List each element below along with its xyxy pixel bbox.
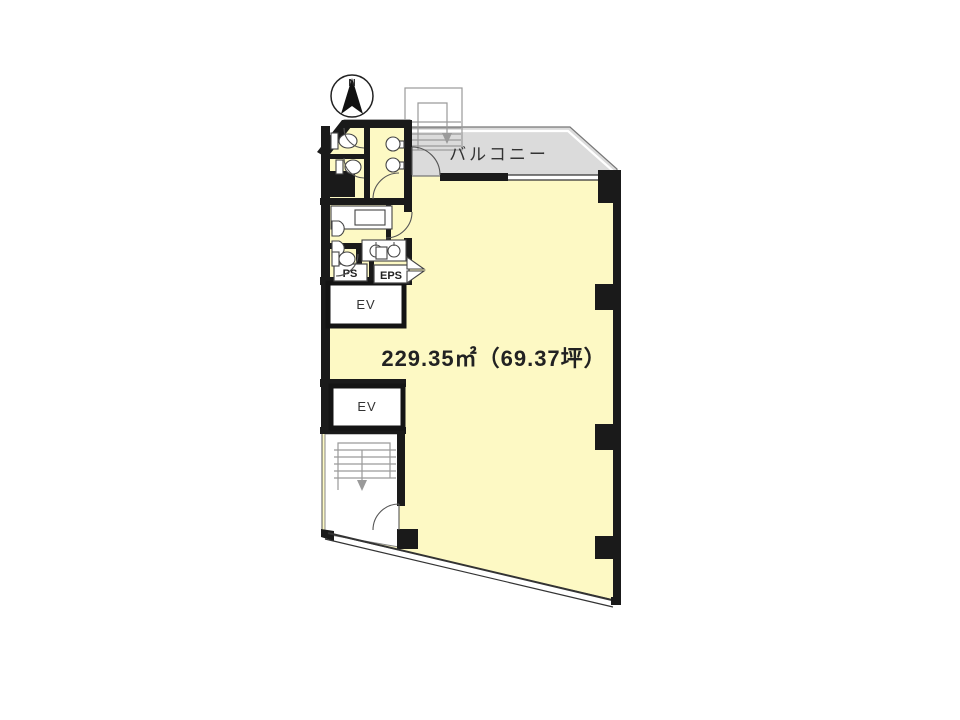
elevator-lower: EV [331, 386, 403, 428]
floor-plan-page: EV EV PS EPS [0, 0, 960, 720]
stairwell-bottom [325, 434, 399, 547]
elevator-upper-label: EV [356, 297, 375, 312]
elevator-upper: EV [328, 283, 404, 326]
floor-plan-drawing: EV EV PS EPS [0, 0, 960, 720]
area-label: 229.35㎡（69.37坪） [381, 346, 606, 371]
wall-top-core [342, 120, 409, 128]
column-bottom-mid [397, 529, 418, 549]
window-top [508, 175, 600, 180]
toilet-icon [332, 252, 355, 266]
column-right-2 [595, 424, 614, 450]
toilet-icon [331, 133, 357, 149]
electrical-pipe-space-label: EPS [380, 270, 402, 282]
column-right-1 [595, 284, 614, 310]
wall-stall-divider-h [326, 154, 365, 159]
compass-icon: N [331, 75, 373, 117]
wall-right [613, 173, 621, 602]
wall-stairwell-right [397, 434, 405, 506]
elevator-lower-label: EV [357, 399, 376, 414]
wall-main-top [440, 173, 508, 181]
service-box [376, 247, 387, 259]
wall-core-divider-1 [320, 198, 410, 205]
balcony-label: バルコニー [449, 145, 549, 164]
electrical-pipe-space: EPS [374, 265, 409, 283]
wall-stall-divider-v [364, 121, 370, 199]
column-right-3 [595, 536, 614, 559]
column-core [327, 171, 355, 197]
compass-north-label: N [348, 78, 355, 89]
toilet-icon [336, 160, 361, 174]
